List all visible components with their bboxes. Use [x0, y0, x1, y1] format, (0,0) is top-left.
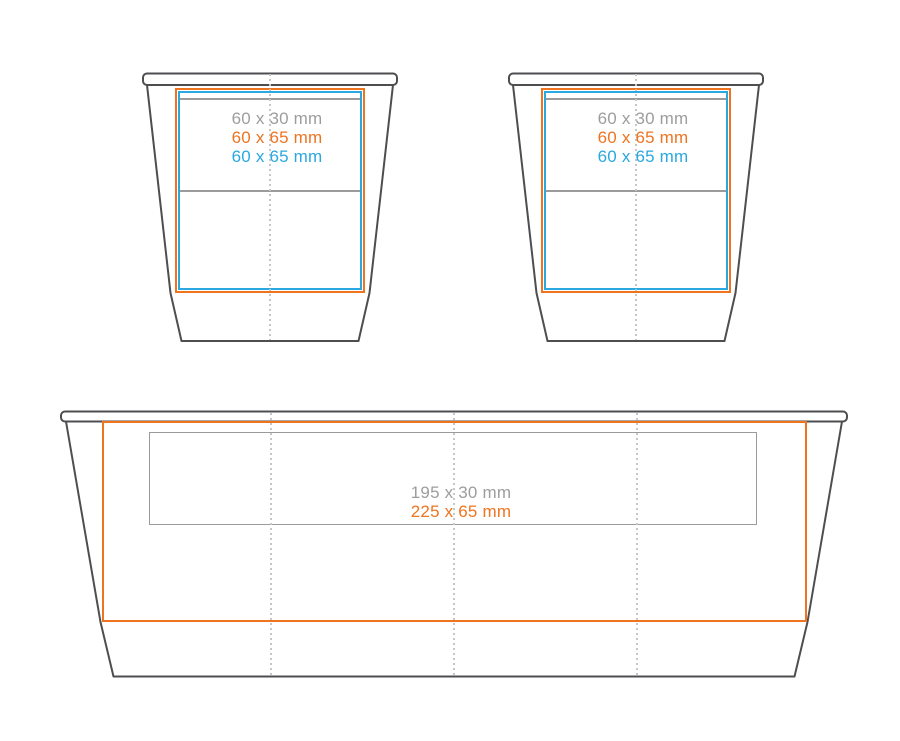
- dimension-label-gray: 60 x 30 mm: [543, 109, 743, 128]
- dimension-label-gray: 60 x 30 mm: [177, 109, 377, 128]
- wrap-view: 195 x 30 mm 225 x 65 mm: [55, 405, 855, 685]
- dimension-label-gray: 195 x 30 mm: [361, 483, 561, 502]
- cup-view-2: 60 x 30 mm 60 x 65 mm 60 x 65 mm: [506, 70, 766, 345]
- dimension-label-blue: 60 x 65 mm: [177, 147, 377, 166]
- dimension-label-orange: 60 x 65 mm: [543, 128, 743, 147]
- dimension-label-blue: 60 x 65 mm: [543, 147, 743, 166]
- cup-view-1: 60 x 30 mm 60 x 65 mm 60 x 65 mm: [140, 70, 400, 345]
- dimension-labels: 60 x 30 mm 60 x 65 mm 60 x 65 mm: [177, 109, 377, 166]
- dimension-label-orange: 225 x 65 mm: [361, 502, 561, 521]
- fold-guide-right: [636, 413, 638, 677]
- fold-guide-center: [453, 413, 455, 677]
- dimension-label-orange: 60 x 65 mm: [177, 128, 377, 147]
- dimension-labels: 195 x 30 mm 225 x 65 mm: [361, 483, 561, 521]
- fold-guide-left: [270, 413, 272, 677]
- print-template-canvas: 60 x 30 mm 60 x 65 mm 60 x 65 mm 60 x 30…: [0, 0, 900, 741]
- dimension-labels: 60 x 30 mm 60 x 65 mm 60 x 65 mm: [543, 109, 743, 166]
